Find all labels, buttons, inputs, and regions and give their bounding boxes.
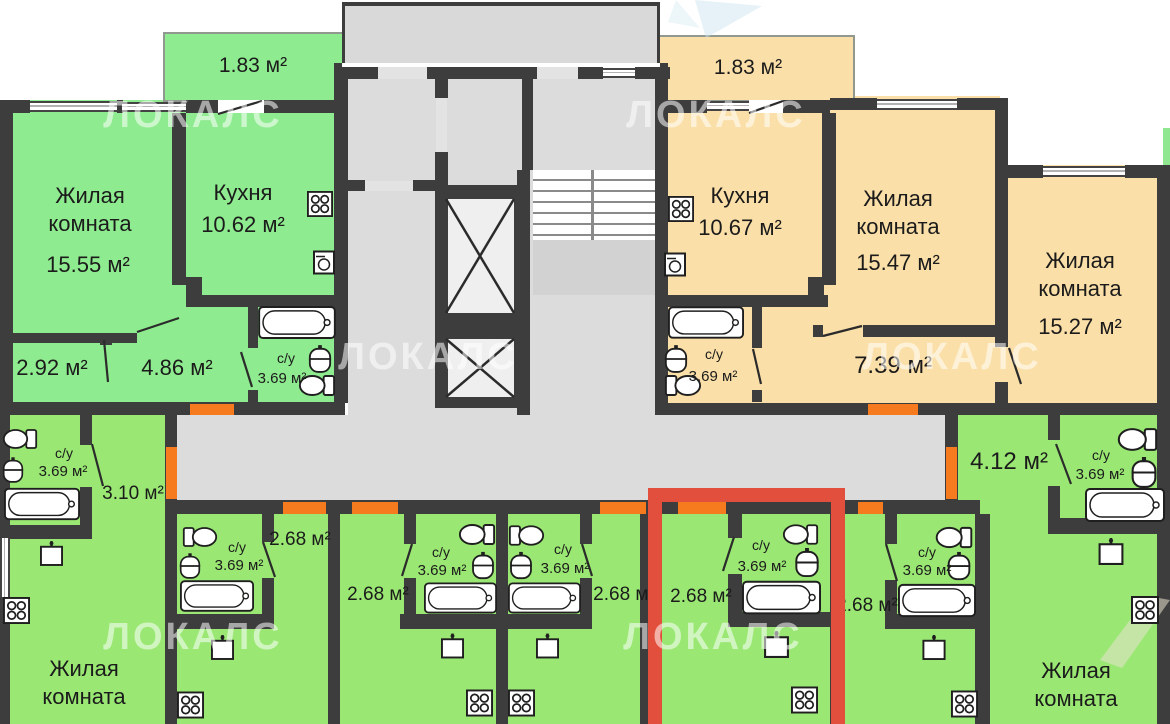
wall-segment [248,307,258,348]
door-opening [436,98,447,152]
wall-segment [957,98,1000,110]
door-opening [365,181,413,191]
area-label-right-bath: 3.69 м² [689,368,738,385]
gap [342,63,660,67]
wall-segment [80,487,92,527]
wall-segment [334,63,348,403]
stairs-landing [533,240,655,295]
area-label-studio-g-bath: 3.69 м² [1076,466,1125,483]
room-label-right-living1: Жилая [863,186,933,211]
wall-segment [248,390,258,402]
window [0,538,10,597]
wall-segment [435,316,530,336]
wall-segment [995,382,1008,403]
area-label-left-kitchen: 10.62 м² [201,212,285,237]
stairs [533,170,655,240]
room-label-studio-g-living: комната [1034,686,1117,711]
window [30,101,117,112]
room-label-right-living1: комната [856,214,939,239]
wall-segment [100,333,112,345]
room-label-studio-g-bath: с/у [1092,447,1110,463]
room-label-right-bath: с/у [705,346,723,362]
window [1043,166,1125,177]
area-label-studio-c-bath: 3.69 м² [418,562,467,579]
wall-segment [580,578,592,618]
wall-segment [655,63,668,403]
balcony-door-opening [749,100,783,113]
floor-plan: 1.83 м² Жилая комната 15.55 м² Кухня 10.… [0,0,1170,724]
wall-segment [995,178,1008,330]
room-label-studio-a-living: комната [42,684,125,709]
wall-segment [186,295,345,307]
area-label-right-hall: 7.39 м² [854,352,932,380]
entrance-door-studio-b[interactable] [283,502,326,514]
area-label-right-living1: 15.47 м² [856,250,940,275]
wall-segment [1008,165,1043,178]
wall-segment [995,330,1008,347]
wall-segment [435,336,448,400]
wall-segment [830,98,877,110]
entrance-door-studio-g[interactable] [946,447,957,499]
wall-segment [522,77,533,170]
area-label-studio-d-hall: 2.68 м² [593,584,655,606]
wall-segment [752,390,762,402]
wall-segment [752,307,762,348]
balcony-door-opening [218,100,264,113]
wall-segment [635,67,670,79]
wall-segment [885,614,977,629]
area-label-studio-c-hall: 2.68 м² [347,584,409,606]
wall-segment [173,614,274,629]
wall-segment [863,325,1003,337]
room-label-studio-f-bath: с/у [918,544,936,560]
wall-segment [435,185,530,196]
entrance-door-right-apartment[interactable] [868,404,918,415]
area-label-right-kitchen: 10.67 м² [698,215,782,240]
wall-segment [348,180,365,191]
window [877,99,957,110]
selected-unit-highlight[interactable] [648,488,845,724]
wall-segment [263,100,345,113]
wall-segment [186,100,218,113]
entrance-door-studio-d[interactable] [600,502,646,514]
room-label-left-bath: с/у [277,350,295,366]
window [603,68,635,78]
elevator-shaft-1 [443,196,517,316]
wall-segment [668,295,828,307]
room-label-studio-g-living: Жилая [1041,658,1111,683]
room-label-left-kitchen: Кухня [214,180,273,205]
wall-segment [0,100,13,402]
area-label-left-bath: 3.69 м² [258,370,307,387]
wall-segment [578,67,603,79]
entrance-door-studio-a[interactable] [166,447,177,499]
area-label-right-living2: 15.27 м² [1038,314,1122,339]
window [122,102,186,112]
wall-segment [262,578,274,618]
room-label-studio-d-bath: с/у [554,541,572,557]
wall-segment [975,514,990,724]
entrance-door-studio-f[interactable] [858,502,883,514]
area-label-studio-a-hall: 3.10 м² [102,483,164,505]
room-label-right-living2: Жилая [1045,248,1115,273]
room-label-right-kitchen: Кухня [711,183,770,208]
wall-segment [995,98,1008,178]
area-label-studio-b-hall: 2.68 м² [269,529,331,551]
wall-segment [1048,486,1060,520]
wall-segment [80,415,92,445]
wall-segment [783,100,830,113]
room-label-studio-c-bath: с/у [432,544,450,560]
wall-segment [404,514,416,544]
wall-segment [1157,165,1170,415]
wall-segment [435,400,530,408]
wall-segment [822,113,836,285]
wall-segment [0,402,345,415]
wall-segment [1048,415,1060,440]
area-label-left-living: 15.55 м² [46,252,130,277]
entrance-door-studio-c[interactable] [352,502,398,514]
wall-segment [334,67,378,79]
room-label-studio-a-living: Жилая [49,656,119,681]
wall-segment [400,614,498,629]
door-opening [378,67,427,79]
wall-segment [0,525,92,539]
area-label-right-balcony: 1.83 м² [714,56,782,80]
wall-segment [0,333,137,343]
wall-segment [885,514,897,544]
area-label-studio-f-hall: 2.68 м² [836,595,898,617]
room-label-right-living2: комната [1038,276,1121,301]
neighbor-balcony-strip [1163,128,1170,170]
entrance-door-left-apartment[interactable] [190,404,234,415]
area-label-left-hall: 4.86 м² [141,355,212,380]
core-top-block [342,2,660,63]
elevator-shaft-2 [443,336,517,400]
room-right-kitchen-zone[interactable] [655,98,830,415]
room-label-left-living: Жилая [55,183,125,208]
door-opening [537,67,578,79]
window [707,101,749,111]
area-label-studio-a-bath: 3.69 м² [39,463,88,480]
room-label-studio-a-bath: с/у [55,445,73,461]
wall-segment [435,196,448,316]
area-label-studio-d-bath: 3.69 м² [541,560,590,577]
stairs-divider [591,170,594,240]
room-label-left-living: комната [48,211,131,236]
faint-logo-top [668,0,762,38]
wall-segment [172,113,186,285]
wall-segment [517,170,530,415]
wall-segment [504,614,592,629]
wall-segment [1048,518,1170,534]
wall-segment [580,514,592,544]
area-label-studio-g-hall: 4.12 м² [970,448,1048,476]
area-label-studio-b-bath: 3.69 м² [215,557,264,574]
wall-segment [1157,415,1170,724]
area-label-left-entry: 2.92 м² [16,355,87,380]
area-label-left-balcony: 1.83 м² [219,54,287,78]
wall-segment [813,325,823,337]
wall-segment [435,77,448,98]
room-label-studio-b-bath: с/у [228,539,246,555]
area-label-studio-f-bath: 3.69 м² [903,562,952,579]
